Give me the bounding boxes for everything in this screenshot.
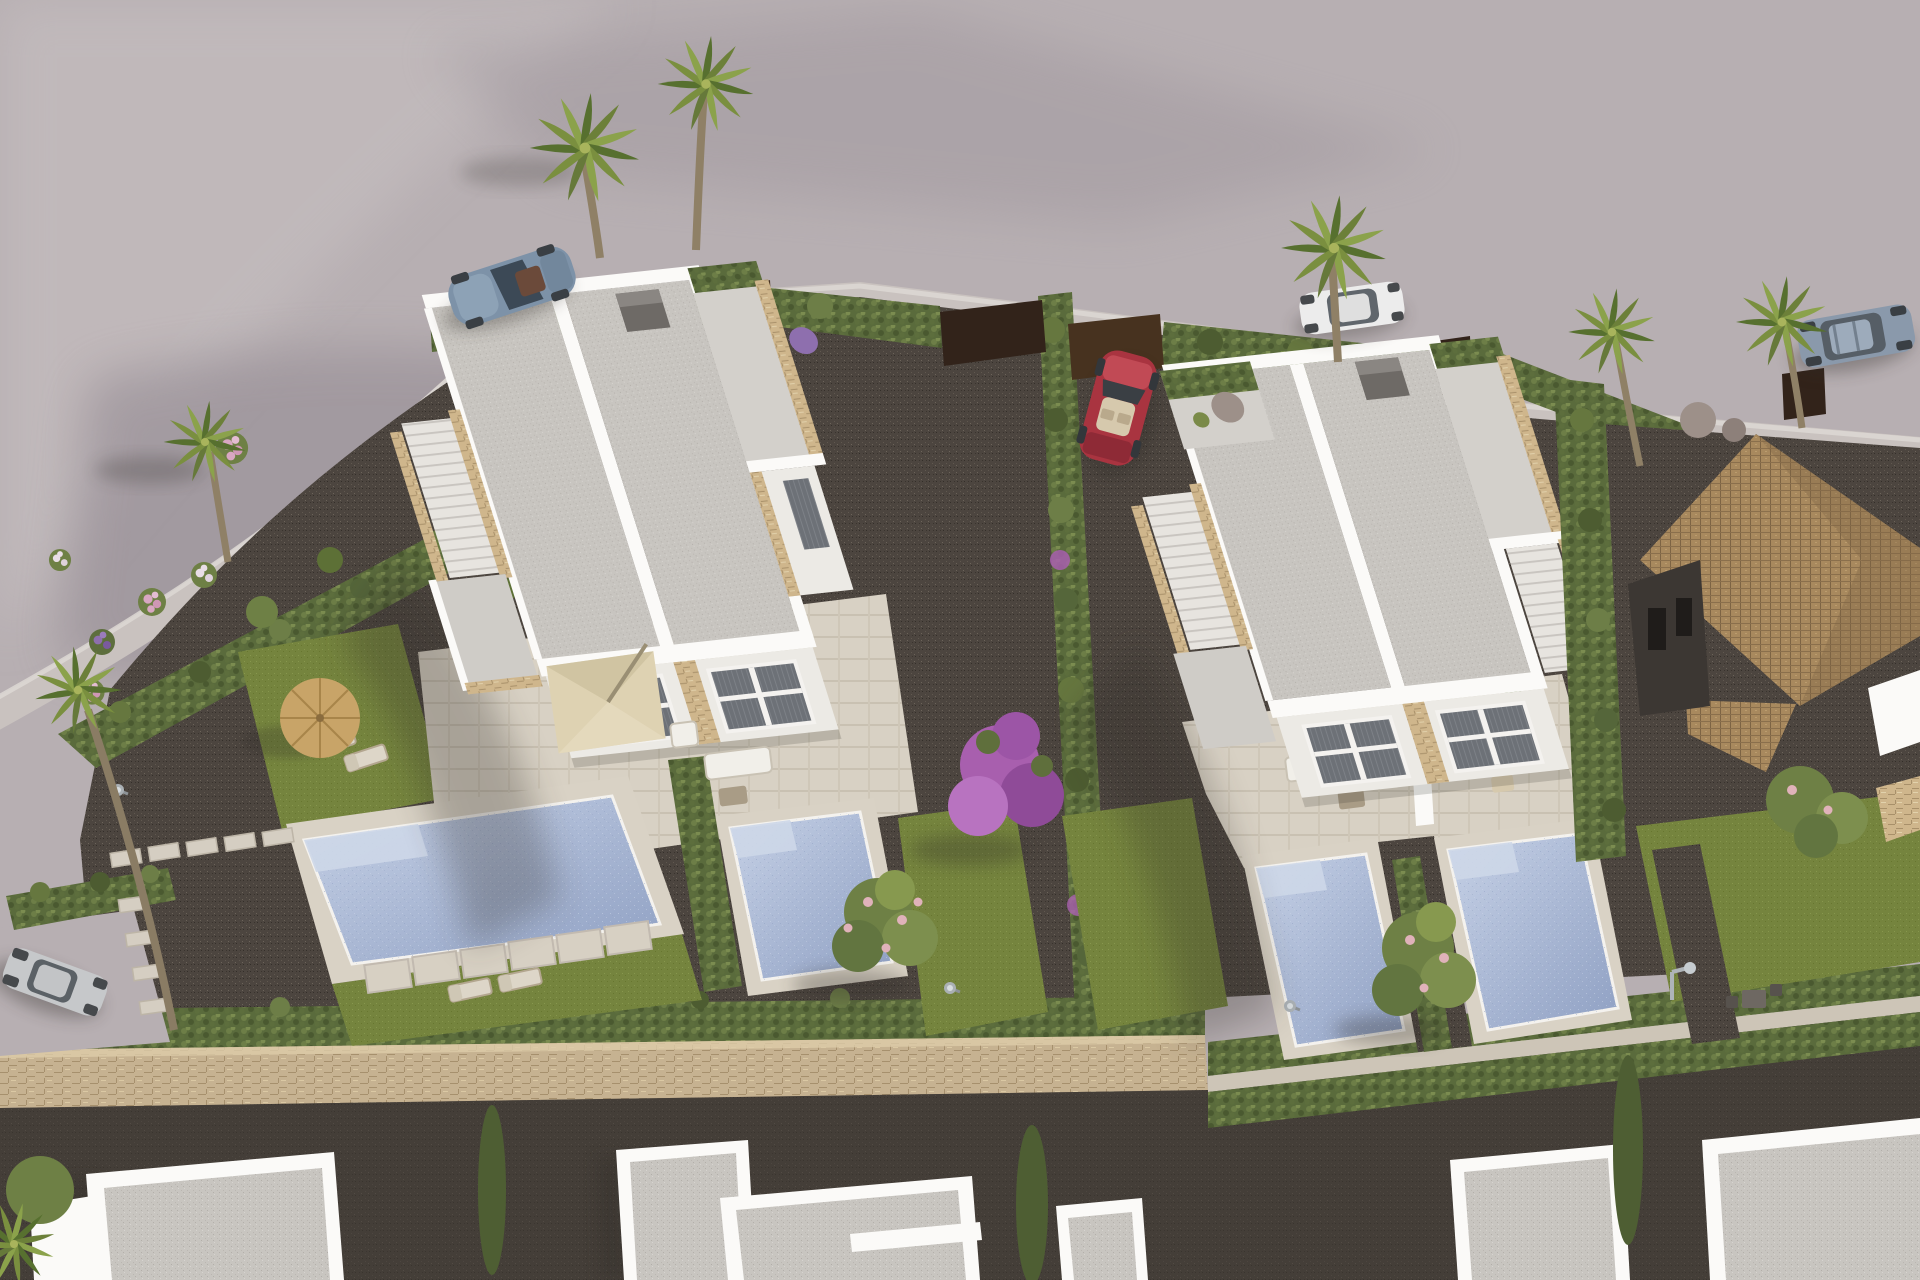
- boulder: [1722, 418, 1746, 442]
- window: [1676, 598, 1692, 636]
- shrub: [246, 596, 278, 628]
- facade-window: [1301, 715, 1411, 788]
- architectural-render: Aerial 3D rendering of a modern villa de…: [0, 0, 1920, 1280]
- coffee-table: [718, 785, 748, 806]
- aerial-render-canvas: Aerial 3D rendering of a modern villa de…: [0, 0, 1920, 1280]
- flower-bush: [191, 562, 217, 588]
- cypress-column: [478, 1105, 506, 1275]
- facade-window: [1435, 701, 1545, 774]
- shrub: [317, 547, 343, 573]
- flower-bush: [49, 549, 71, 571]
- boulder: [1680, 402, 1716, 438]
- cypress-column: [1016, 1125, 1048, 1280]
- bougainvillea-bloom: [1050, 550, 1070, 570]
- cypress-column: [1613, 1055, 1643, 1245]
- dark-facade: [1628, 560, 1710, 716]
- flower-bush: [89, 629, 115, 655]
- armchair: [670, 721, 699, 748]
- fence-panel: [1782, 368, 1826, 420]
- shrub: [6, 1156, 74, 1224]
- flower-bush: [138, 588, 166, 616]
- window: [1648, 608, 1666, 650]
